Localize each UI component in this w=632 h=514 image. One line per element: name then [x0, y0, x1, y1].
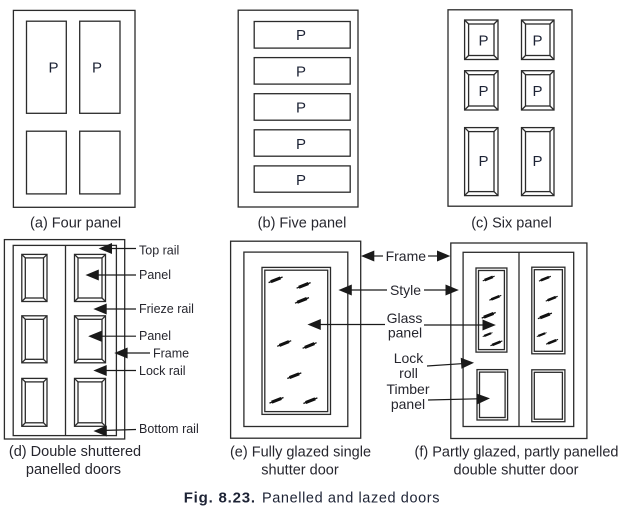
- svg-text:P: P: [296, 100, 306, 117]
- svg-text:Frame: Frame: [386, 248, 427, 264]
- svg-text:P: P: [479, 33, 489, 50]
- svg-text:panel: panel: [388, 325, 422, 341]
- svg-text:Lock rail: Lock rail: [139, 364, 186, 378]
- svg-text:Timber: Timber: [386, 381, 429, 397]
- svg-text:shutter door: shutter door: [261, 463, 339, 479]
- svg-text:(e) Fully glazed single: (e) Fully glazed single: [230, 445, 371, 461]
- svg-text:P: P: [296, 172, 306, 189]
- svg-text:P: P: [533, 33, 543, 50]
- svg-text:Top rail: Top rail: [139, 244, 179, 258]
- svg-text:panelled doors: panelled doors: [26, 462, 121, 478]
- svg-text:Panelled and lazed doors: Panelled and lazed doors: [262, 491, 440, 507]
- svg-text:panel: panel: [391, 396, 425, 412]
- svg-text:(d) Double shuttered: (d) Double shuttered: [9, 444, 141, 460]
- svg-text:(c) Six panel: (c) Six panel: [471, 216, 552, 232]
- svg-text:Panel: Panel: [139, 268, 171, 282]
- svg-text:Frame: Frame: [153, 347, 189, 361]
- svg-text:P: P: [92, 60, 102, 77]
- svg-text:P: P: [533, 153, 543, 170]
- svg-text:P: P: [296, 136, 306, 153]
- svg-text:P: P: [49, 60, 59, 77]
- svg-text:(b) Five panel: (b) Five panel: [258, 216, 347, 232]
- svg-text:Panel: Panel: [139, 329, 171, 343]
- svg-text:Bottom rail: Bottom rail: [139, 422, 199, 436]
- svg-text:Style: Style: [390, 282, 421, 298]
- svg-text:roll: roll: [399, 365, 418, 381]
- svg-text:(f) Partly glazed, partly pane: (f) Partly glazed, partly panelled: [415, 445, 619, 461]
- svg-text:Frieze rail: Frieze rail: [139, 302, 194, 316]
- svg-text:P: P: [479, 83, 489, 100]
- svg-text:(a) Four panel: (a) Four panel: [30, 216, 121, 232]
- svg-text:Fig. 8.23.: Fig. 8.23.: [184, 490, 256, 507]
- svg-text:P: P: [479, 153, 489, 170]
- svg-text:P: P: [533, 83, 543, 100]
- svg-text:double shutter door: double shutter door: [454, 463, 579, 479]
- svg-text:P: P: [296, 27, 306, 44]
- svg-text:P: P: [296, 63, 306, 80]
- svg-text:Lock: Lock: [394, 350, 425, 366]
